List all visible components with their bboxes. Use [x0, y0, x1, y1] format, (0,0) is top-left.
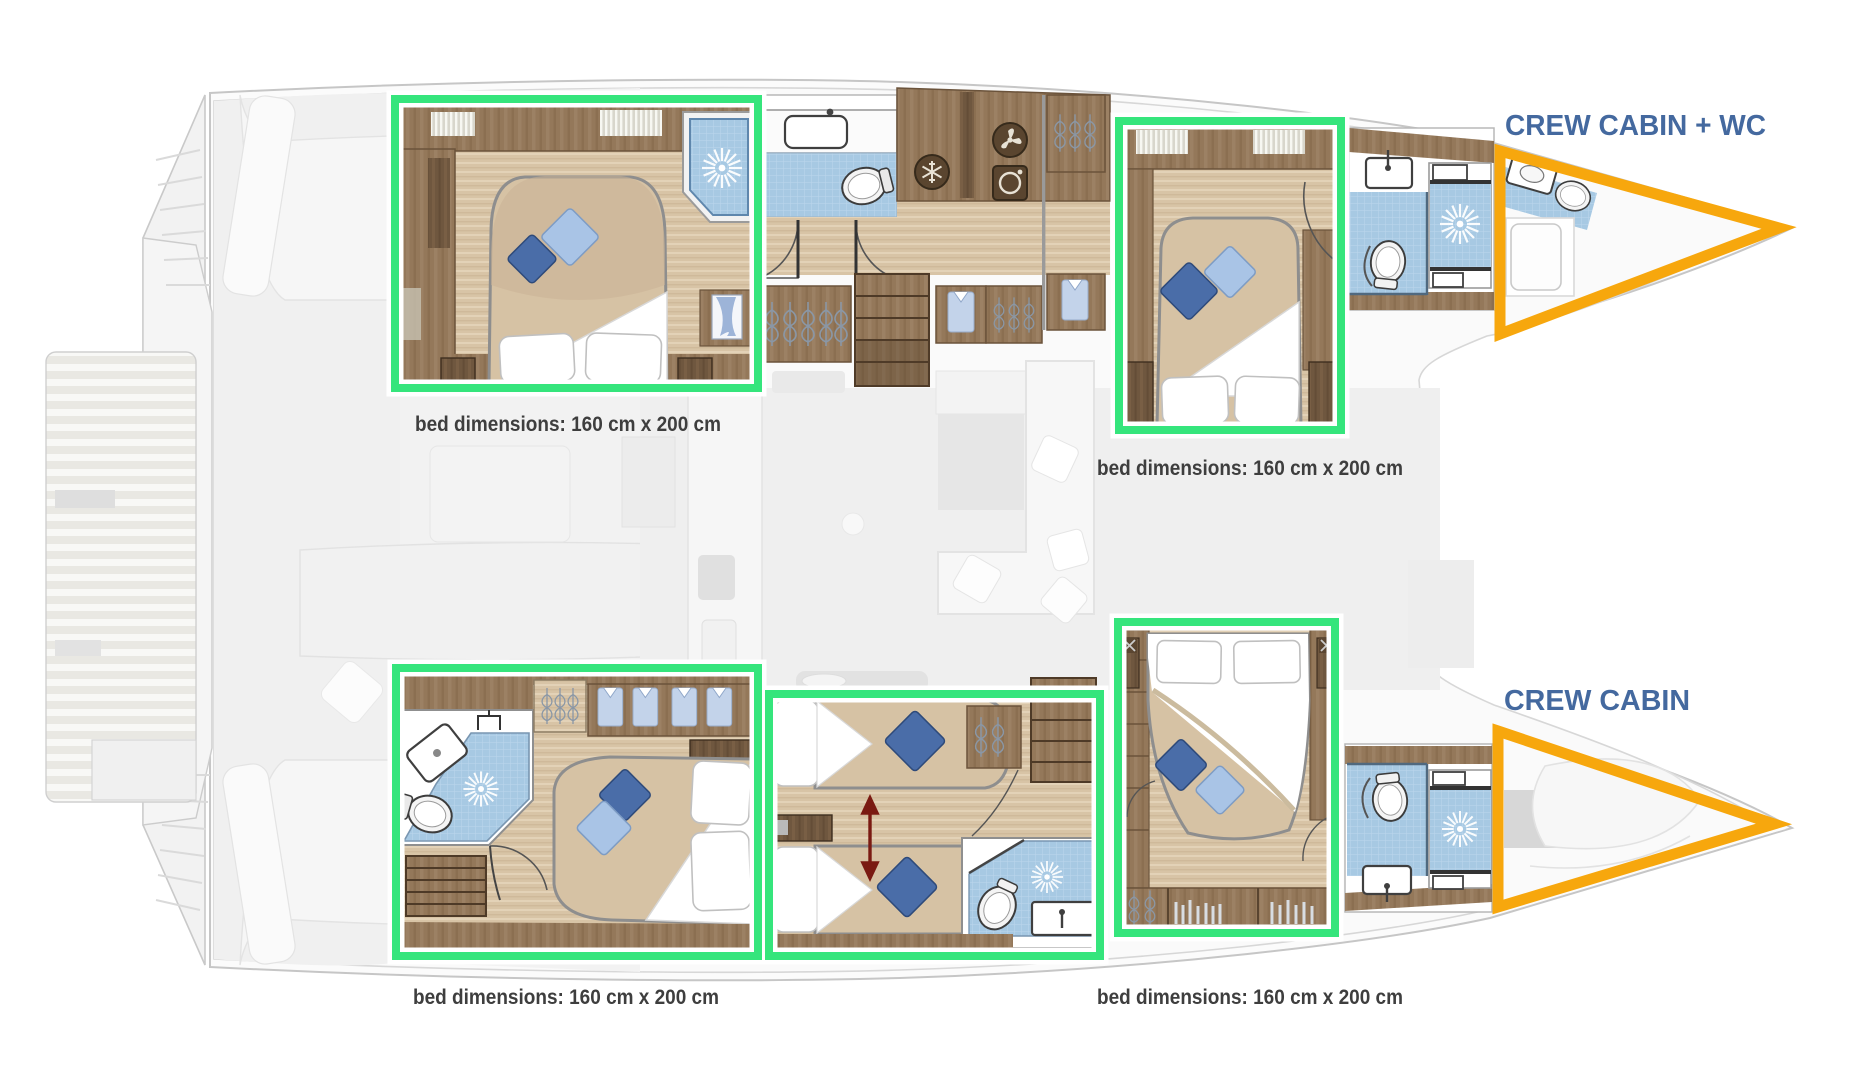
svg-text:CREW CABIN + WC: CREW CABIN + WC — [1505, 110, 1766, 142]
svg-text:bed dimensions: 160 cm x 200 c: bed dimensions: 160 cm x 200 cm — [413, 986, 719, 1009]
svg-text:bed dimensions: 160 cm x 200 c: bed dimensions: 160 cm x 200 cm — [1097, 986, 1403, 1009]
svg-text:bed dimensions: 160 cm x 200 c: bed dimensions: 160 cm x 200 cm — [1097, 457, 1403, 480]
svg-text:CREW CABIN: CREW CABIN — [1504, 685, 1690, 717]
svg-text:bed dimensions: 160 cm x 200 c: bed dimensions: 160 cm x 200 cm — [415, 413, 721, 436]
